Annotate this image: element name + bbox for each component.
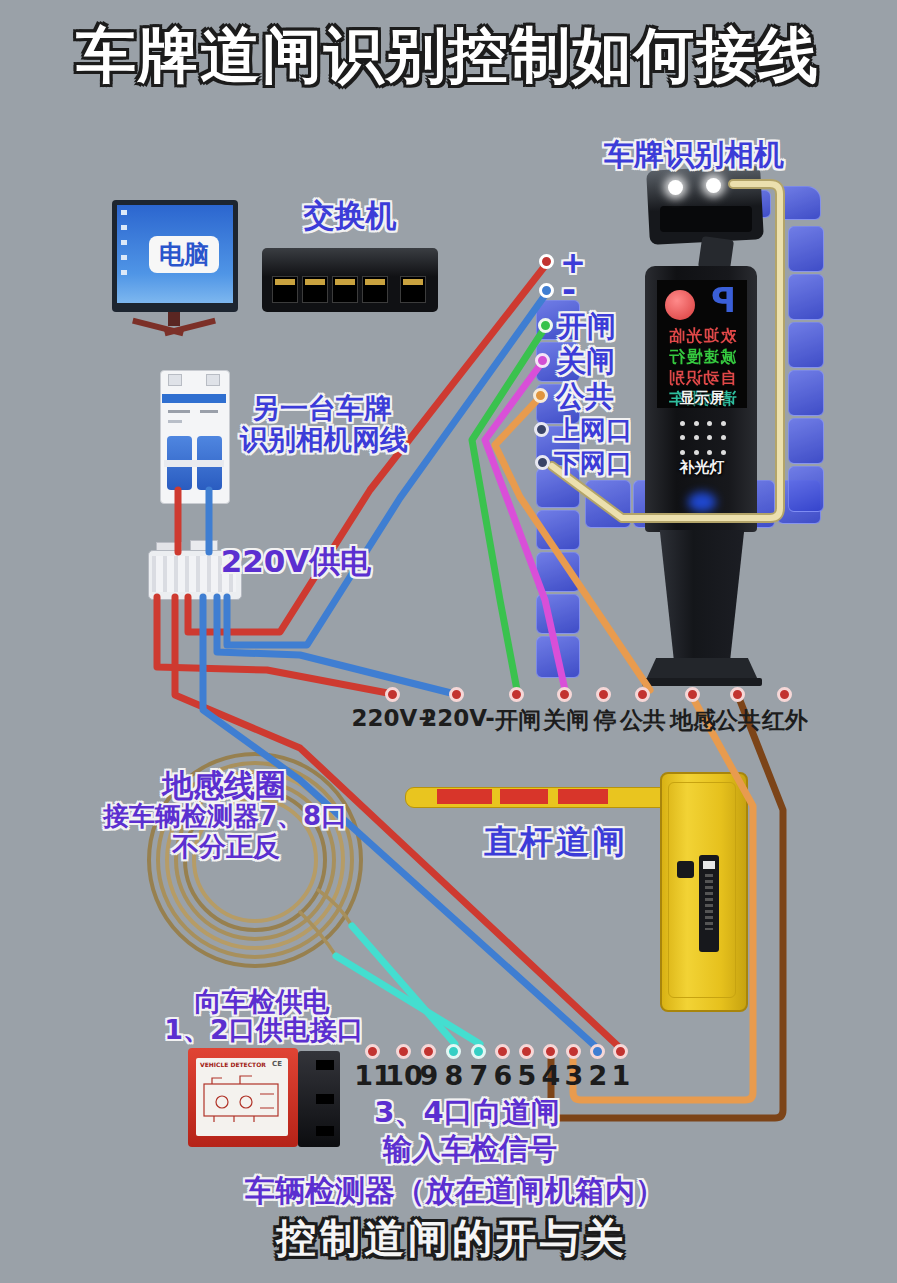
gate-terminal-label: 开闸	[495, 705, 541, 736]
port-dot-7	[471, 1044, 486, 1059]
gate-terminal-label: 关闸	[543, 705, 589, 736]
camera-terminal-dot-net-up	[534, 422, 549, 437]
gate-dot-open	[509, 687, 524, 702]
port-dot-8	[446, 1044, 461, 1059]
port-dot-5	[519, 1044, 534, 1059]
camera-terminal-dot-common	[533, 388, 548, 403]
camera-terminal-label: 关闸	[557, 346, 615, 376]
wire-orange-loop-port3	[573, 698, 753, 1100]
port-dot-11	[365, 1044, 380, 1059]
gate-terminal-label: 停	[594, 705, 617, 736]
gate-terminal-label: 公共	[715, 705, 761, 736]
camera-terminal-label: 公共	[556, 381, 614, 411]
footer-caption: 控制道闸的开与关	[276, 1216, 628, 1260]
coil-note-polarity: 不分正反	[172, 832, 280, 862]
port-number: 7	[470, 1060, 489, 1091]
port-number: 10	[385, 1060, 423, 1091]
gate-label: 直杆道闸	[484, 824, 628, 860]
port-number: 8	[445, 1060, 464, 1091]
gate-terminal-label: 地感	[670, 705, 716, 736]
switch-label: 交换机	[304, 198, 397, 232]
wire-cyan-port8	[352, 926, 455, 1044]
camera-terminal-dot-plus	[539, 254, 554, 269]
port-number: 1	[612, 1060, 631, 1091]
port-number: 3	[565, 1060, 584, 1091]
camera-terminal-label: 开闸	[558, 311, 616, 341]
camera-terminal-dot-close	[535, 353, 550, 368]
gate-dot-220v-minus	[449, 687, 464, 702]
wire-brown-loop-port4	[551, 698, 783, 1118]
camera-terminal-label: 下网口	[554, 448, 632, 478]
port-number: 9	[420, 1060, 439, 1091]
port-dot-3	[566, 1044, 581, 1059]
port-number: 6	[494, 1060, 513, 1091]
coil-title: 地感线圈	[162, 768, 286, 802]
port-dot-2	[590, 1044, 605, 1059]
page-title: 车牌道闸识别控制如何接线	[76, 22, 820, 88]
breaker-label-line2: 识别相机网线	[240, 425, 408, 456]
port-dot-10	[396, 1044, 411, 1059]
camera-terminal-label: -	[562, 274, 576, 304]
camera-label: 车牌识别相机	[604, 138, 784, 171]
wiring-diagram: 电脑	[0, 0, 897, 1283]
port-number: 4	[542, 1060, 561, 1091]
detector-caption: 车辆检测器（放在道闸机箱内）	[245, 1174, 665, 1207]
camera-terminal-dot-net-down	[535, 455, 550, 470]
gate-dot-common2	[730, 687, 745, 702]
port-dot-6	[495, 1044, 510, 1059]
camera-terminal-dot-minus	[539, 283, 554, 298]
detector-signal-note1: 3、4口向道闸	[374, 1097, 559, 1129]
gate-dot-stop	[596, 687, 611, 702]
coil-lead	[300, 890, 352, 956]
port-dot-1	[613, 1044, 628, 1059]
coil-note-ports: 接车辆检测器7、8口	[103, 802, 347, 831]
power-label: 220V供电	[221, 544, 372, 578]
gate-dot-220v-plus	[385, 687, 400, 702]
gate-terminal-label: 红外	[762, 705, 808, 736]
port-dot-9	[421, 1044, 436, 1059]
gate-terminal-label: 220V-	[421, 705, 495, 731]
gate-dot-close	[557, 687, 572, 702]
detector-power-note1: 向车检供电	[195, 987, 330, 1017]
camera-terminal-label: 上网口	[554, 415, 632, 445]
detector-signal-note2: 输入车检信号	[383, 1134, 557, 1166]
detector-power-note2: 1、2口供电接口	[164, 1015, 364, 1045]
camera-terminal-dot-open	[538, 318, 553, 333]
gate-dot-common1	[635, 687, 650, 702]
gate-dot-infrared	[777, 687, 792, 702]
port-number: 2	[589, 1060, 608, 1091]
breaker-label-line1: 另一台车牌	[252, 394, 392, 425]
gate-dot-loop	[685, 687, 700, 702]
port-number: 5	[518, 1060, 537, 1091]
port-dot-4	[543, 1044, 558, 1059]
gate-terminal-label: 公共	[620, 705, 666, 736]
